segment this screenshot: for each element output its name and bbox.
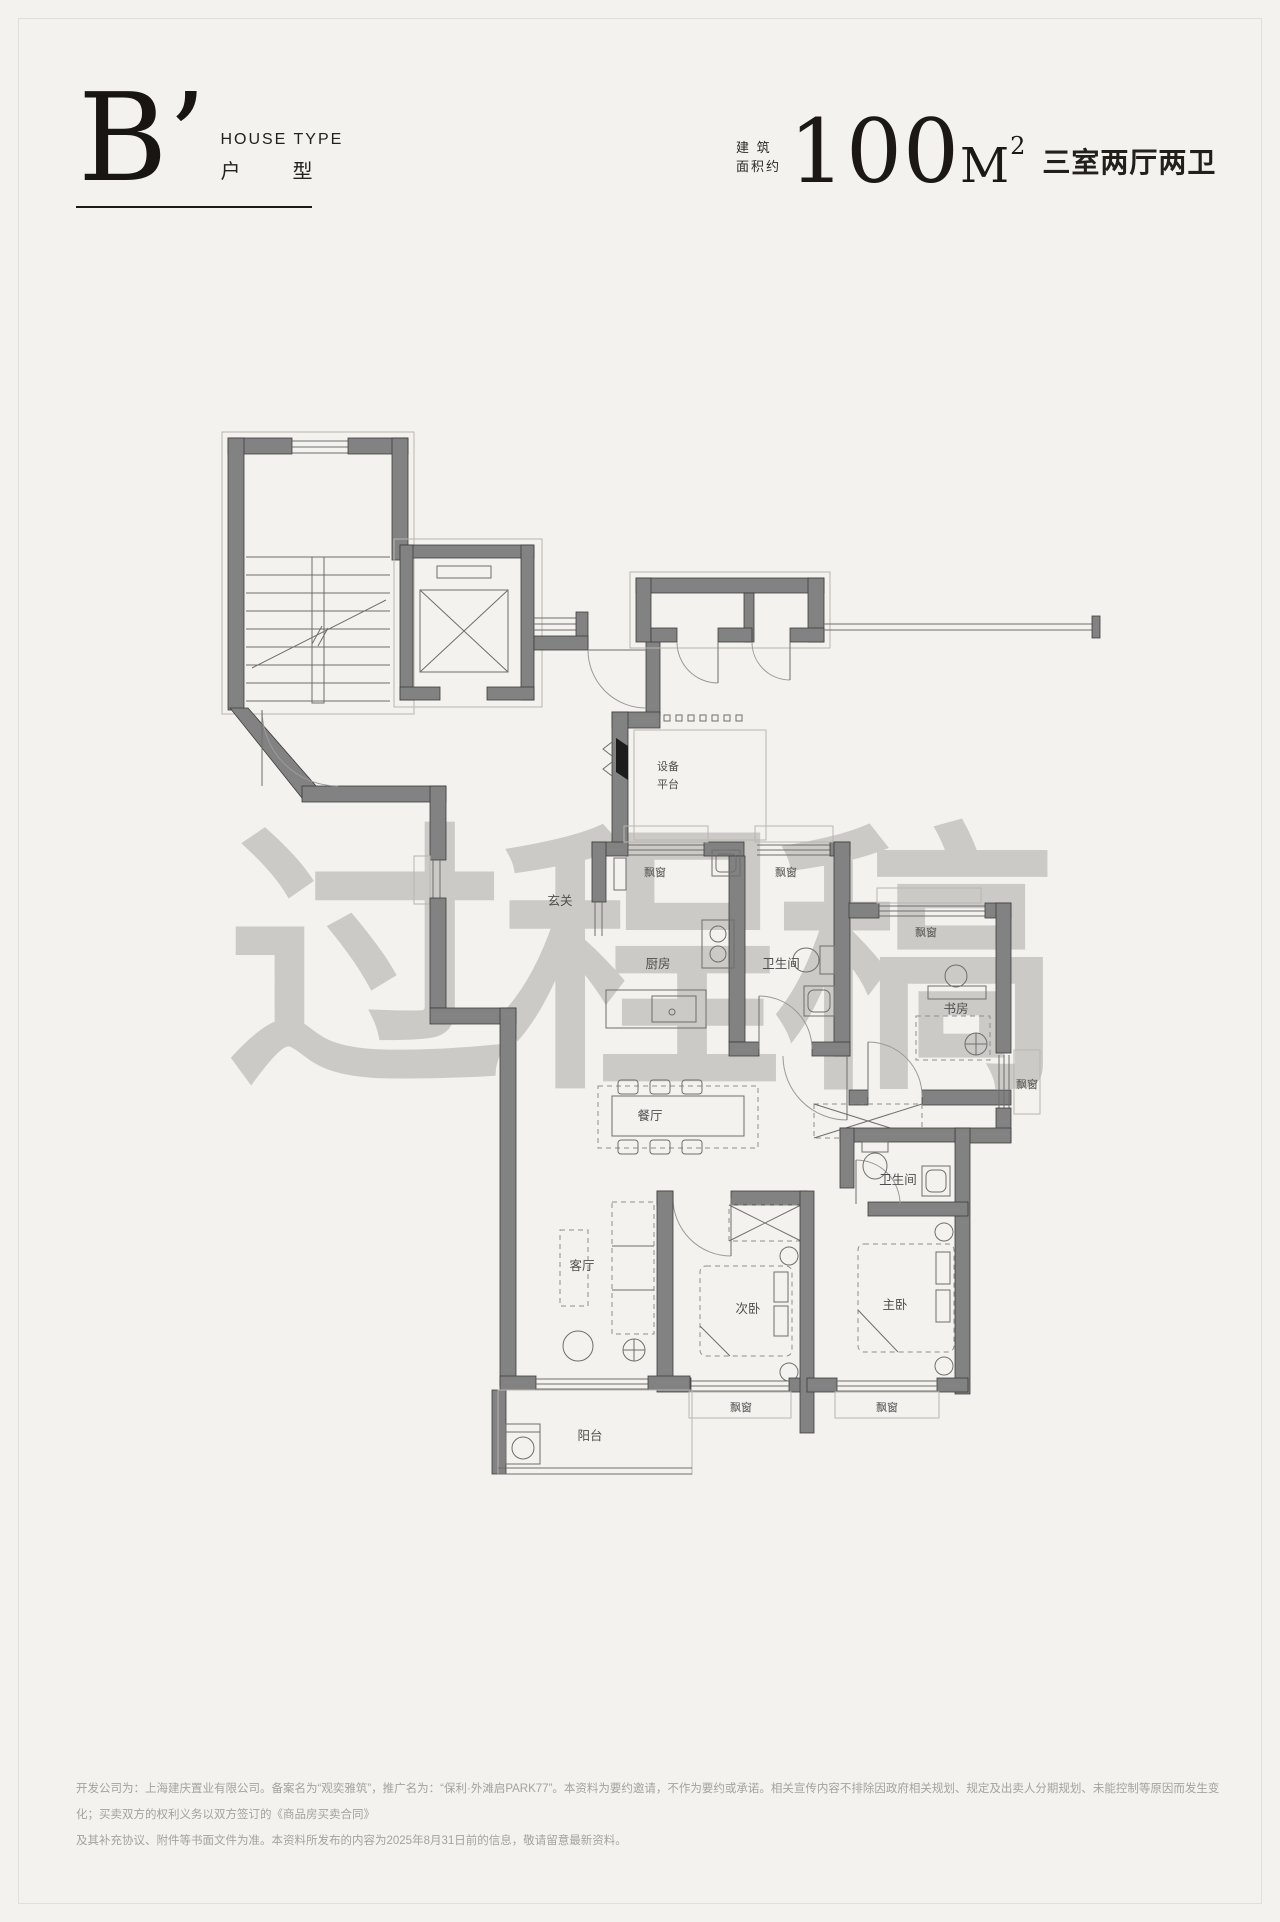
room-label-bedroom2: 次卧 xyxy=(735,1302,760,1316)
room-label-equipment-2: 平台 xyxy=(657,777,679,791)
lobby xyxy=(230,708,446,802)
dining-room: 餐厅 xyxy=(598,1080,758,1154)
room-label-entry: 玄关 xyxy=(547,893,572,908)
disclaimer-line2: 及其补充协议、附件等书面文件为准。本资料所发布的内容为2025年8月31日前的信… xyxy=(76,1828,1224,1854)
unit-left-wall xyxy=(414,786,516,1386)
room-label-balcony: 阳台 xyxy=(577,1428,602,1443)
room-label-dining: 餐厅 xyxy=(637,1108,662,1123)
room-label-bathroom2: 卫生间 xyxy=(879,1173,917,1187)
utility-shafts xyxy=(630,572,1100,683)
disclaimer-line1: 开发公司为：上海建庆置业有限公司。备案名为“观奕雅筑”，推广名为：“保利·外滩启… xyxy=(76,1776,1224,1828)
living-room: 客厅 xyxy=(560,1202,654,1361)
house-type-page: B’ HOUSE TYPE 户 型 建 筑 面积约 100M2 三室两厅两卫 过… xyxy=(0,0,1280,1922)
bay-window-label-bedroom2: 飘窗 xyxy=(730,1400,752,1414)
bay-window-label-master: 飘窗 xyxy=(876,1400,898,1414)
bay-window-label-study: 飘窗 xyxy=(915,925,937,939)
room-label-study: 书房 xyxy=(943,1001,968,1016)
kitchen: 飘窗 厨房 xyxy=(592,826,745,1042)
disclaimer: 开发公司为：上海建庆置业有限公司。备案名为“观奕雅筑”，推广名为：“保利·外滩启… xyxy=(76,1776,1224,1854)
elevator xyxy=(394,539,542,707)
room-label-bathroom1: 卫生间 xyxy=(762,957,800,971)
bay-window-label-kitchen: 飘窗 xyxy=(644,865,666,879)
bay-window-label-bath1: 飘窗 xyxy=(775,865,797,879)
room-label-equipment-1: 设备 xyxy=(657,759,679,773)
room-label-kitchen: 厨房 xyxy=(645,956,670,971)
room-label-living: 客厅 xyxy=(569,1258,594,1273)
stairwell xyxy=(222,432,414,714)
bay-window-label-right: 飘窗 xyxy=(1016,1077,1038,1091)
study: 飘窗 书房 xyxy=(849,888,1011,1105)
room-label-master: 主卧 xyxy=(882,1298,907,1312)
floor-plan: 设备 平台 飘窗 xyxy=(0,0,1280,1922)
bathroom-2: 卫生间 xyxy=(840,1128,968,1216)
bathroom-1: 飘窗 卫生间 xyxy=(729,826,850,1056)
